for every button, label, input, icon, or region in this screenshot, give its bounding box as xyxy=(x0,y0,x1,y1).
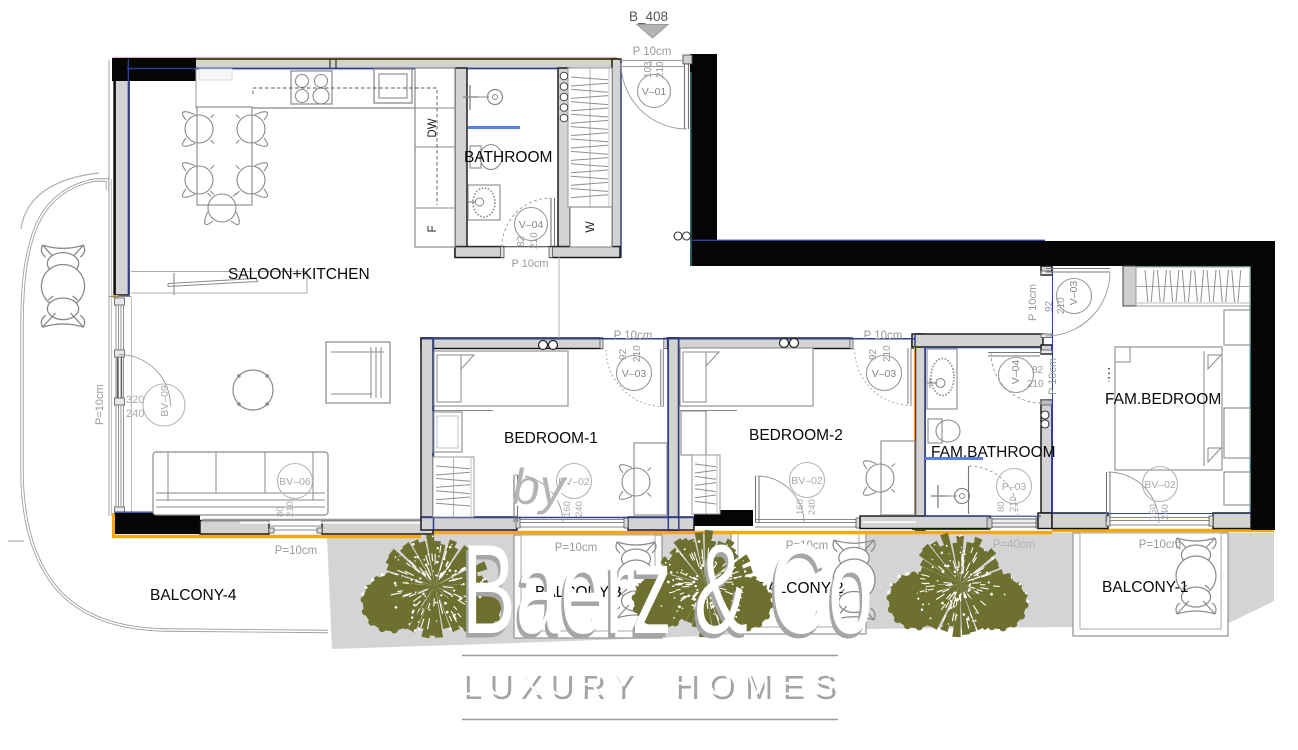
svg-text:Baerz & Co: Baerz & Co xyxy=(462,518,873,660)
svg-text:80: 80 xyxy=(996,501,1007,512)
svg-text:V–04: V–04 xyxy=(519,219,544,231)
svg-text:B_408: B_408 xyxy=(629,9,668,24)
svg-text:BALCONY-1: BALCONY-1 xyxy=(1102,579,1188,596)
svg-text:BV–09: BV–09 xyxy=(159,385,171,417)
svg-text:FAM.BEDROOM: FAM.BEDROOM xyxy=(1105,391,1221,408)
svg-text:P 10cm: P 10cm xyxy=(511,258,548,270)
svg-text:160: 160 xyxy=(1148,504,1159,520)
svg-text:V–03: V–03 xyxy=(872,368,897,380)
svg-text:92: 92 xyxy=(1044,300,1055,312)
svg-text:P–03: P–03 xyxy=(1002,481,1027,493)
svg-text:P=40cm: P=40cm xyxy=(993,539,1036,551)
svg-text:210: 210 xyxy=(285,501,296,517)
svg-text:HOMES: HOMES xyxy=(673,665,844,702)
svg-text:V–03: V–03 xyxy=(1068,281,1080,306)
svg-text:SALOON+KITCHEN: SALOON+KITCHEN xyxy=(228,266,370,283)
svg-text:92: 92 xyxy=(868,348,879,360)
svg-text:240: 240 xyxy=(1160,504,1171,520)
svg-text:320: 320 xyxy=(126,394,144,406)
svg-text:P=10cm: P=10cm xyxy=(275,545,318,557)
svg-text:P 10cm: P 10cm xyxy=(1047,358,1059,395)
svg-text:210: 210 xyxy=(632,345,643,362)
svg-text:210: 210 xyxy=(1027,379,1044,390)
svg-text:P 10cm: P 10cm xyxy=(864,330,903,342)
svg-text:82: 82 xyxy=(1032,365,1044,376)
svg-text:BEDROOM-1: BEDROOM-1 xyxy=(504,430,598,447)
svg-text:240: 240 xyxy=(126,408,144,420)
svg-text:BV–02: BV–02 xyxy=(1144,479,1176,491)
svg-text:240: 240 xyxy=(807,499,818,515)
svg-text:V–04: V–04 xyxy=(1010,360,1022,385)
svg-text:210: 210 xyxy=(1008,496,1019,512)
svg-text:LUXURY: LUXURY xyxy=(461,665,639,702)
svg-text:92: 92 xyxy=(618,348,629,360)
svg-text:W: W xyxy=(583,221,597,233)
svg-text:210: 210 xyxy=(882,345,893,362)
svg-text:BATHROOM: BATHROOM xyxy=(464,149,552,166)
svg-text:P=10cm: P=10cm xyxy=(1139,539,1182,551)
svg-text:V–01: V–01 xyxy=(642,86,667,98)
svg-text:82: 82 xyxy=(516,235,527,247)
svg-text:BV–02: BV–02 xyxy=(791,475,823,487)
svg-text:P 10cm: P 10cm xyxy=(1027,284,1039,321)
svg-text:BV–06: BV–06 xyxy=(279,476,311,488)
svg-text:240: 240 xyxy=(574,501,585,517)
svg-text:P=10cm: P=10cm xyxy=(94,384,106,425)
svg-text:BALCONY-4: BALCONY-4 xyxy=(150,587,237,604)
svg-text:FAM.BATHROOM: FAM.BATHROOM xyxy=(931,444,1056,461)
svg-text:210: 210 xyxy=(1056,297,1067,314)
svg-text:210: 210 xyxy=(529,232,540,249)
svg-text:160: 160 xyxy=(795,499,806,515)
svg-text:P 10cm: P 10cm xyxy=(614,330,653,342)
svg-text:BEDROOM-2: BEDROOM-2 xyxy=(749,427,843,444)
svg-text:103: 103 xyxy=(643,61,654,78)
svg-text:210: 210 xyxy=(655,61,666,78)
svg-text:F: F xyxy=(427,225,439,232)
svg-text:V–03: V–03 xyxy=(622,368,647,380)
svg-text:P 10cm: P 10cm xyxy=(633,46,672,58)
svg-text:by: by xyxy=(512,459,568,515)
